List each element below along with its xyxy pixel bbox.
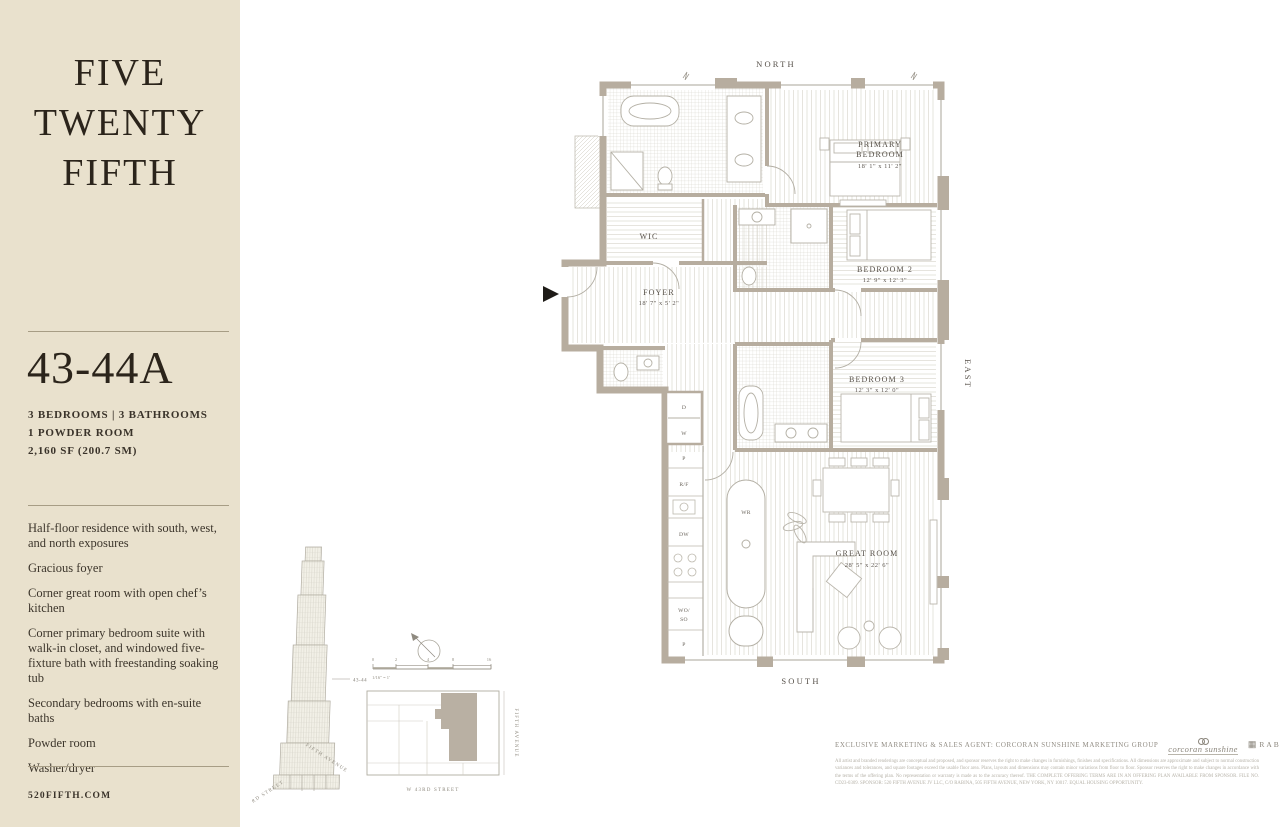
legal-disclaimer: All artist and branded renderings are co… <box>835 758 1259 788</box>
sidebar: FIVE TWENTY FIFTH 43-44A 3 BEDROOMS | 3 … <box>0 0 240 827</box>
scale-tick: 4 <box>427 657 430 662</box>
scale-tick: 2 <box>395 657 397 662</box>
wall-oven-label: WO/ <box>678 608 690 614</box>
dishwasher-label: DW <box>679 532 689 538</box>
compass-north-label: NORTH <box>756 59 796 69</box>
floor-plan: NORTH EAST SOUTH <box>535 48 985 698</box>
wall-break-mark <box>911 72 917 80</box>
compass-east-label: EAST <box>963 359 973 389</box>
keyplan-street-w43: W 43RD STREET <box>406 788 459 793</box>
kitchen-run: P R/F DW WO/ SO P <box>667 446 703 656</box>
wine-fridge-label: WR <box>741 510 751 516</box>
dryer-label: D <box>682 405 686 411</box>
primary-bedroom-label: BEDROOM <box>856 150 904 159</box>
agent-line: EXCLUSIVE MARKETING & SALES AGENT: CORCO… <box>835 741 1158 749</box>
dining-set <box>813 458 899 522</box>
spec-bed-bath: 3 BEDROOMS | 3 BATHROOMS <box>28 406 208 424</box>
feature-list: Half-floor residence with south, west, a… <box>28 521 226 786</box>
scale-note: 1/16" = 1' <box>372 675 390 680</box>
rabina-logo: ▦ RABINA <box>1248 740 1280 749</box>
speed-oven-label: SO <box>680 617 688 623</box>
rabina-wordmark: RABINA <box>1259 740 1280 749</box>
brand-line-3: FIFTH <box>0 148 240 198</box>
divider <box>28 505 229 506</box>
primary-bedroom-label: PRIMARY <box>858 140 902 149</box>
locator-group: 0 2 4 8 16 1/16" = 1' FIFTH AVENUE W 43R… <box>363 593 525 805</box>
feature-item: Washer/dryer <box>28 761 226 776</box>
brochure-page: FIVE TWENTY FIFTH 43-44A 3 BEDROOMS | 3 … <box>0 0 1280 827</box>
bedroom3-dims: 12' 3" x 12' 0" <box>855 387 899 394</box>
scale-tick: 16 <box>487 657 492 662</box>
agent-row: EXCLUSIVE MARKETING & SALES AGENT: CORCO… <box>835 736 1259 753</box>
street-label-w43: W 43RD STREET <box>252 780 285 805</box>
spec-powder: 1 POWDER ROOM <box>28 424 208 442</box>
wic-label: WIC <box>640 232 659 241</box>
rabina-icon: ▦ <box>1248 740 1257 749</box>
feature-item: Gracious foyer <box>28 561 226 576</box>
bedroom3-bed <box>841 394 931 442</box>
wall-break-mark <box>683 72 689 80</box>
feature-item: Corner primary bedroom suite with walk-i… <box>28 626 226 686</box>
pantry-label: P <box>682 642 685 648</box>
spec-area: 2,160 SF (200.7 SM) <box>28 442 208 460</box>
key-plan: FIFTH AVENUE W 43RD STREET <box>367 691 518 793</box>
feature-item: Secondary bedrooms with en-suite baths <box>28 696 226 726</box>
divider <box>28 331 229 332</box>
bedroom2-label: BEDROOM 2 <box>857 265 913 274</box>
primary-bedroom-dims: 18' 1" x 11' 2" <box>858 163 902 170</box>
building-core-hatch <box>575 136 603 208</box>
divider <box>28 766 229 767</box>
keyplan-street-fifth: FIFTH AVENUE <box>513 708 518 757</box>
great-room-dims: 28' 5" x 22' 6" <box>845 562 889 569</box>
corcoran-wordmark: corcoran sunshine <box>1168 744 1238 755</box>
unit-number: 43-44A <box>27 341 174 394</box>
tower-massing <box>273 547 347 789</box>
corcoran-sunshine-logo: corcoran sunshine <box>1168 738 1238 752</box>
feature-item: Corner great room with open chef’s kitch… <box>28 586 226 616</box>
north-arrow-icon <box>411 633 440 662</box>
pantry-label: P <box>682 456 685 462</box>
great-room-label: GREAT ROOM <box>836 549 899 558</box>
building-illustration: 43-44 W 43RD STREET FIFTH AVENUE <box>252 535 372 805</box>
bedroom2-bed <box>847 210 931 260</box>
entry-arrow-icon <box>543 286 559 302</box>
compass-south-label: SOUTH <box>781 676 820 686</box>
laundry-closet: D W <box>666 392 702 444</box>
scale-tick: 0 <box>372 657 375 662</box>
bedroom3-label: BEDROOM 3 <box>849 375 905 384</box>
scale-bar: 0 2 4 8 16 1/16" = 1' <box>372 657 492 680</box>
fridge-label: R/F <box>679 482 688 488</box>
foyer-label: FOYER <box>643 288 675 297</box>
brand-line-1: FIVE <box>0 48 240 98</box>
kitchen-island <box>727 480 765 646</box>
footer: EXCLUSIVE MARKETING & SALES AGENT: CORCO… <box>835 736 1259 788</box>
unit-specs: 3 BEDROOMS | 3 BATHROOMS 1 POWDER ROOM 2… <box>28 406 208 460</box>
washer-label: W <box>681 431 687 437</box>
scale-tick: 8 <box>452 657 455 662</box>
feature-item: Half-floor residence with south, west, a… <box>28 521 226 551</box>
foyer-dims: 18' 7" x 5' 2" <box>639 300 680 307</box>
brand-line-2: TWENTY <box>0 98 240 148</box>
feature-item: Powder room <box>28 736 226 751</box>
brand-logo: FIVE TWENTY FIFTH <box>0 48 240 198</box>
bedroom2-dims: 12' 9" x 12' 3" <box>863 277 907 284</box>
website-url: 520FIFTH.COM <box>28 791 111 801</box>
